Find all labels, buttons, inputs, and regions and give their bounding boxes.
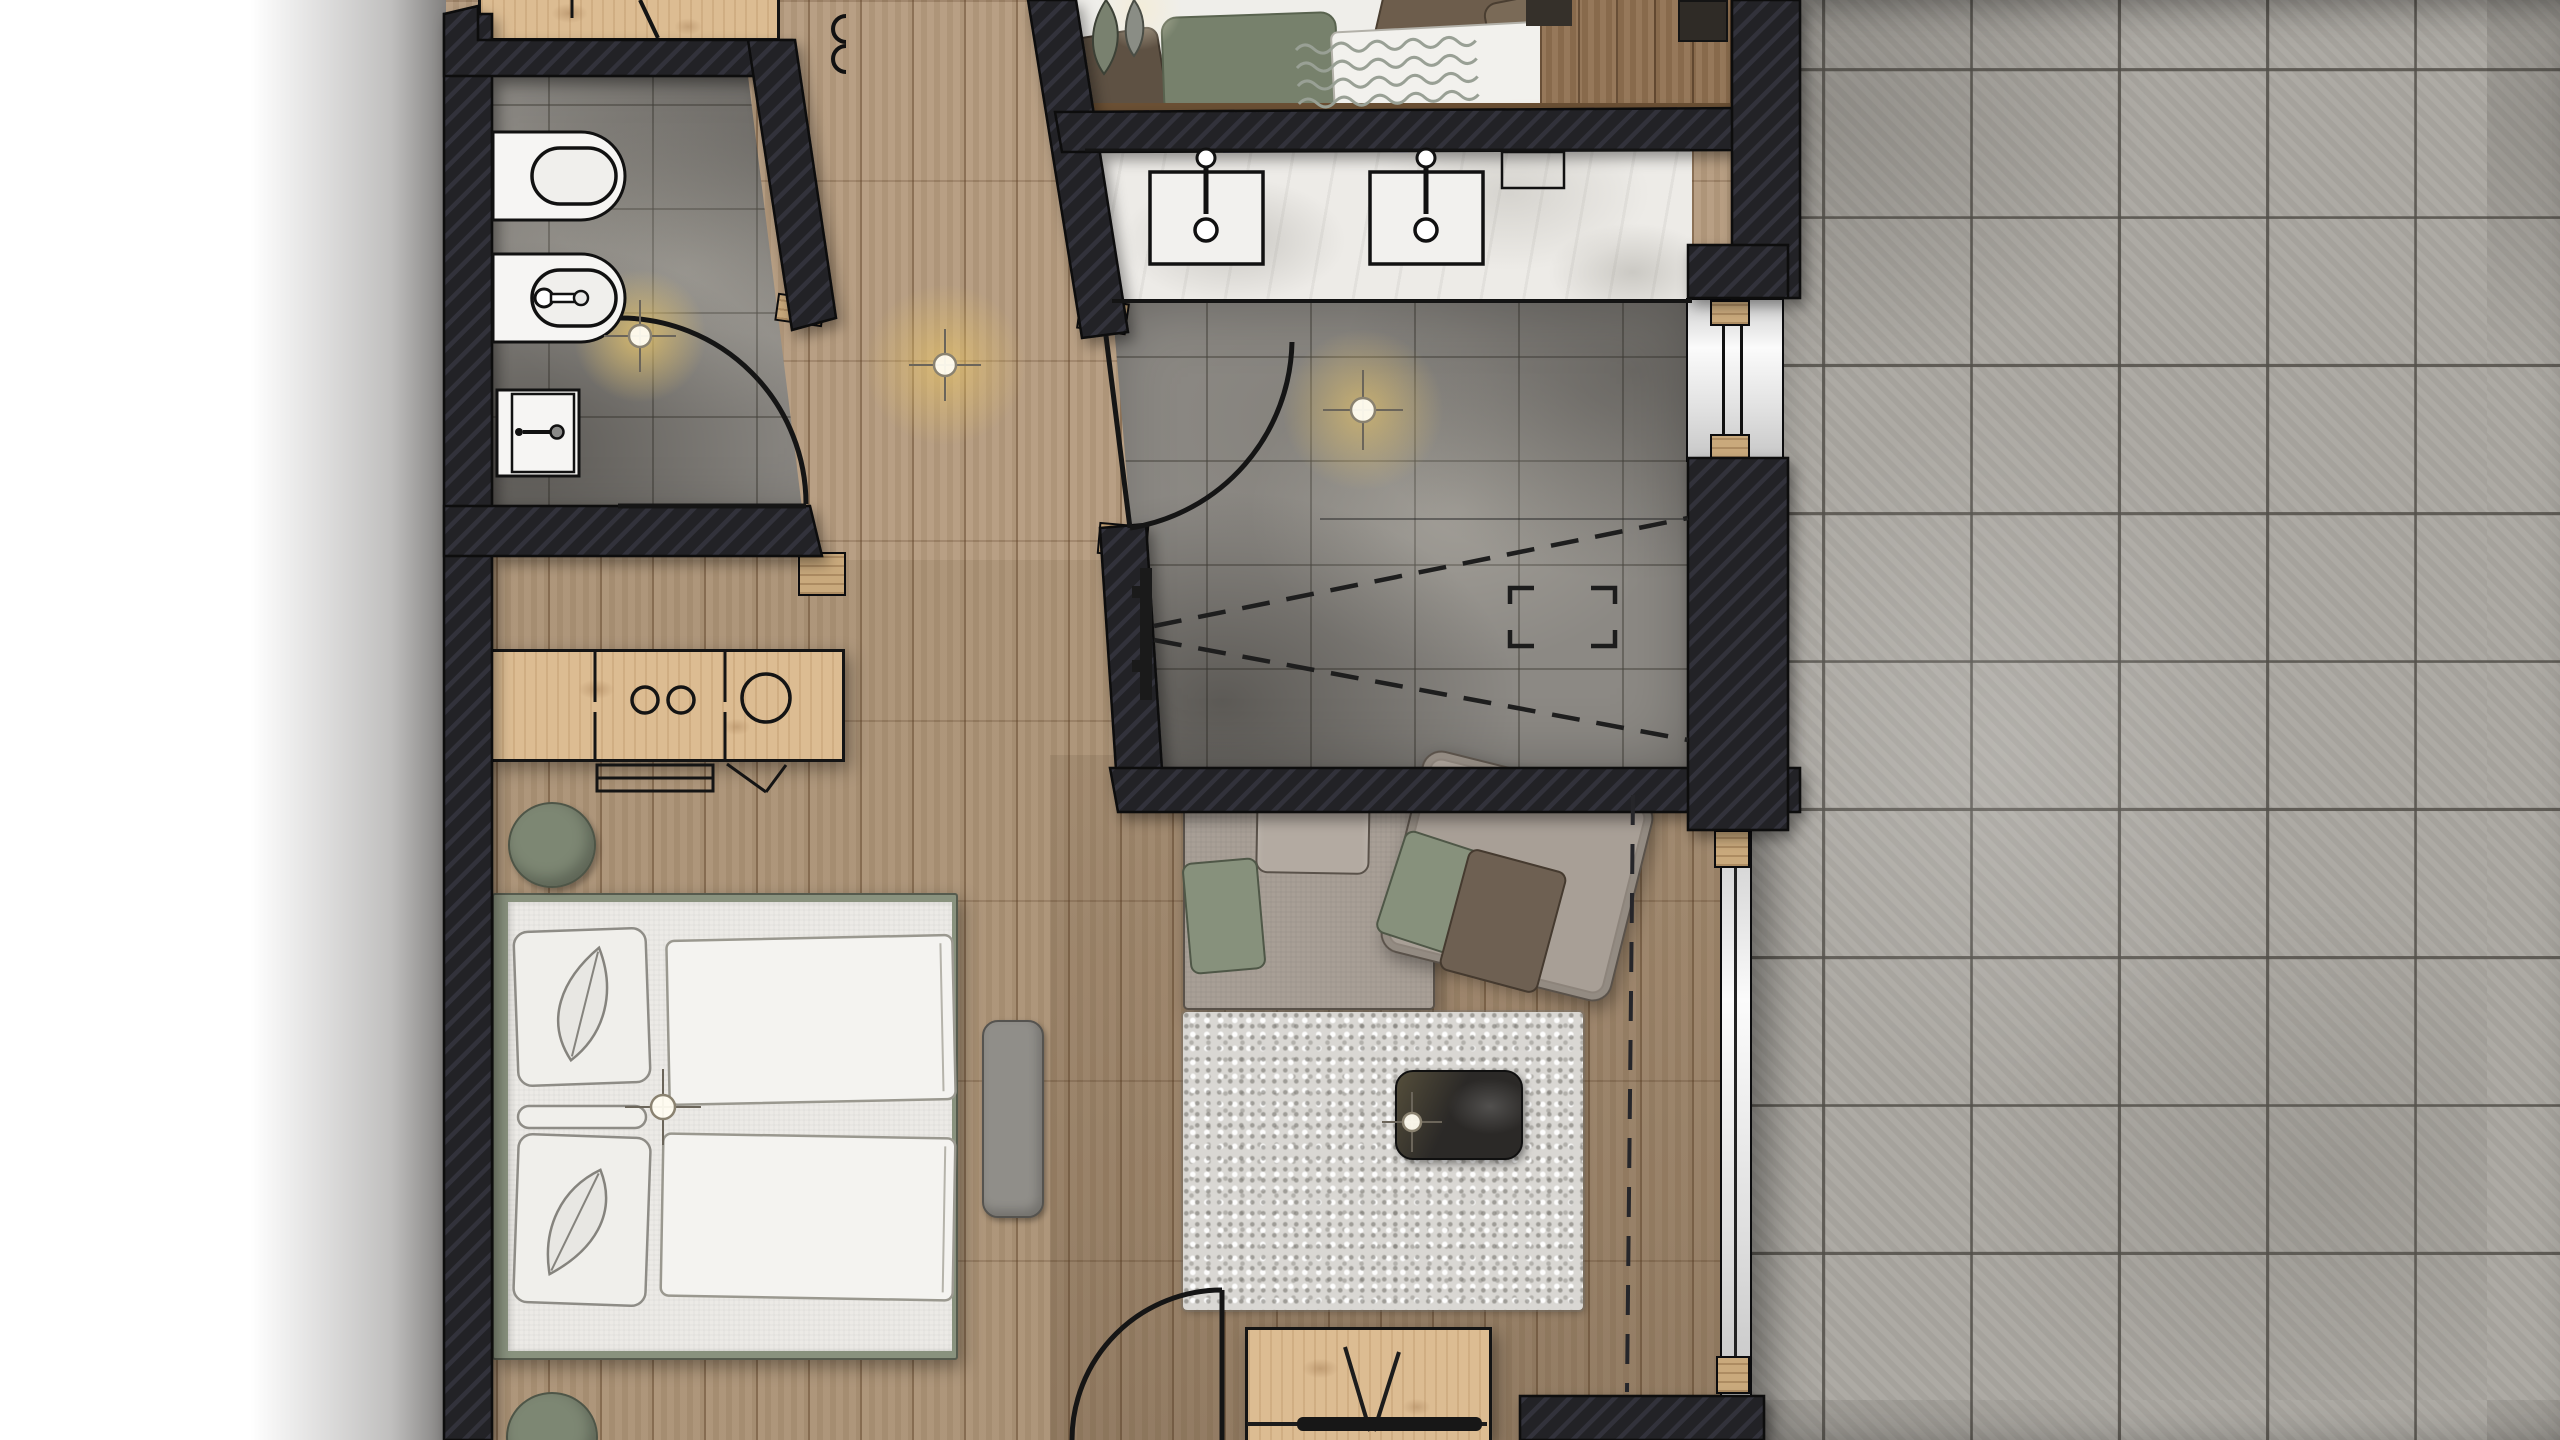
duvet-top [666,935,955,1105]
curtain-track-dashes [1627,795,1633,1392]
luggage-rack [597,764,786,792]
tv-details [1247,1347,1487,1431]
bed-pillow-thin [518,1106,646,1128]
amenity-tray [1502,152,1564,188]
fixtures-layer [0,0,2560,1440]
light-hall [909,329,981,401]
wall-sink [497,390,579,476]
minibar-details [595,652,790,760]
wardrobe-details [572,0,658,38]
entry-door-swing [1072,1290,1222,1440]
shower-fixture [1132,518,1688,740]
vanity-linework [1085,149,1692,301]
toilet [493,132,625,220]
shower-door-swing [1106,336,1292,528]
bidet [493,254,625,342]
light-coffee-table [1382,1092,1442,1152]
duvet-bottom [661,1133,956,1300]
plant [1093,0,1143,74]
wall-hooks [833,16,846,72]
spray-dash-lower [1154,640,1688,740]
towel-waves [1296,36,1479,108]
floor-plan-canvas [0,0,2560,1440]
spray-dash-upper [1154,518,1688,626]
light-shower-bath [1323,370,1403,450]
floor-marker-brackets [1510,588,1615,646]
